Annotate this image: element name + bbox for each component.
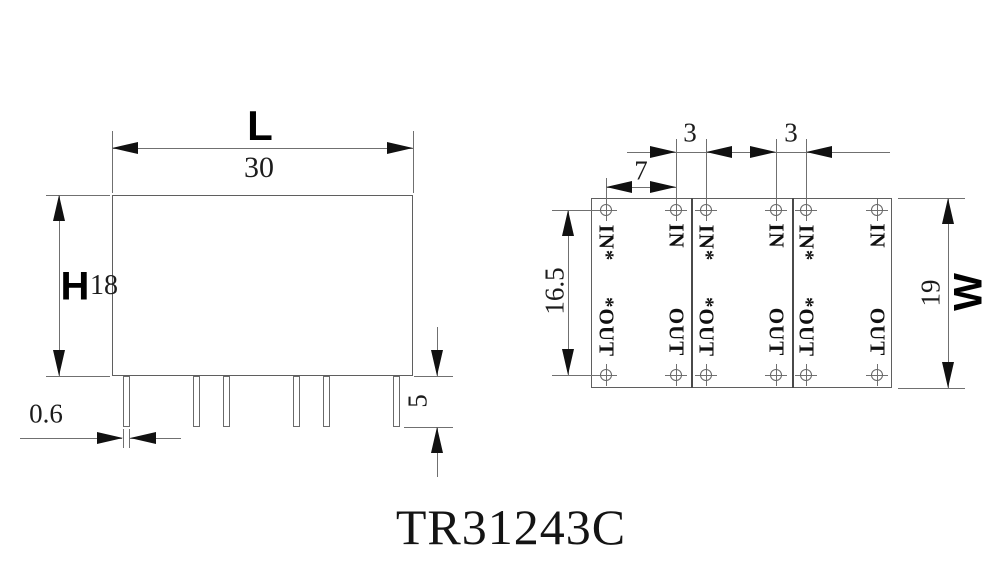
pin-1: [123, 376, 130, 427]
dim-arrow: [942, 362, 954, 388]
pin-2: [193, 376, 200, 427]
pin-hole: [871, 204, 883, 216]
pin-hole: [670, 369, 682, 381]
extension-line: [404, 427, 453, 428]
dim-arrow: [112, 142, 138, 154]
dim-arrow: [387, 142, 413, 154]
pin-label: IN: [865, 223, 890, 248]
extension-line: [112, 131, 113, 193]
pin-4: [293, 376, 300, 427]
dim-value-pitch: 7: [634, 156, 648, 187]
dim-label-L: L: [247, 102, 273, 150]
dim-arrow: [650, 146, 676, 158]
extension-line: [898, 388, 965, 389]
dim-value-gap-1: 3: [683, 118, 697, 149]
pin-label: IN: [664, 223, 689, 248]
pin-label: IN*: [594, 225, 619, 262]
pin-label: IN*: [794, 225, 819, 262]
dim-value-30: 30: [244, 151, 274, 185]
dim-arrow: [97, 432, 123, 444]
dim-arrow: [53, 350, 65, 376]
dim-arrow: [606, 181, 632, 193]
pin-5: [323, 376, 330, 427]
extension-line: [414, 376, 453, 377]
dim-arrow: [806, 146, 832, 158]
dim-arrow: [750, 146, 776, 158]
top-view-body: [591, 198, 892, 388]
part-number-title: TR31243C: [396, 498, 626, 556]
pin-label: IN: [764, 223, 789, 248]
dim-value-pin-length: 5: [403, 394, 434, 408]
pin-label: *OUT: [594, 297, 619, 357]
dim-arrow: [53, 195, 65, 221]
pin-hole: [770, 204, 782, 216]
pin-label: *OUT: [794, 297, 819, 357]
extension-line: [552, 210, 600, 211]
pin-hole: [600, 369, 612, 381]
pin-hole: [700, 204, 712, 216]
extension-line: [898, 198, 965, 199]
pin-label: OUT: [764, 308, 789, 357]
pin-hole: [871, 369, 883, 381]
dim-arrow: [562, 349, 574, 375]
extension-line: [46, 376, 110, 377]
dim-arrow: [650, 181, 676, 193]
dim-arrow: [942, 198, 954, 224]
dim-arrow: [562, 210, 574, 236]
pin-label: OUT: [865, 308, 890, 357]
extension-line: [552, 375, 600, 376]
pin-3: [223, 376, 230, 427]
dim-label-H: H: [61, 265, 90, 310]
pin-hole: [600, 204, 612, 216]
pin-hole: [800, 204, 812, 216]
extension-line: [676, 139, 677, 200]
dimension-drawing: L 30 H 18 0.6 5: [0, 0, 1000, 568]
dim-value-gap-2: 3: [784, 118, 798, 149]
extension-line: [413, 131, 414, 193]
front-view-body: [112, 195, 413, 376]
dim-value-18: 18: [90, 270, 118, 302]
pin-label: OUT: [664, 308, 689, 357]
pin-hole: [670, 204, 682, 216]
dim-label-W: W: [947, 273, 992, 311]
pin-6: [393, 376, 400, 427]
pin-hole: [700, 369, 712, 381]
pin-hole: [800, 369, 812, 381]
extension-line: [123, 429, 124, 448]
pin-label: *OUT: [694, 297, 719, 357]
extension-line: [776, 139, 777, 200]
dim-arrow: [130, 432, 156, 444]
dim-arrow: [706, 146, 732, 158]
dim-value-19: 19: [916, 280, 947, 307]
dim-arrow: [431, 427, 443, 453]
dim-value-pin-width: 0.6: [29, 399, 63, 430]
dim-arrow: [431, 350, 443, 376]
pin-label: IN*: [694, 225, 719, 262]
dim-value-row-spacing: 16.5: [540, 267, 571, 314]
pin-hole: [770, 369, 782, 381]
